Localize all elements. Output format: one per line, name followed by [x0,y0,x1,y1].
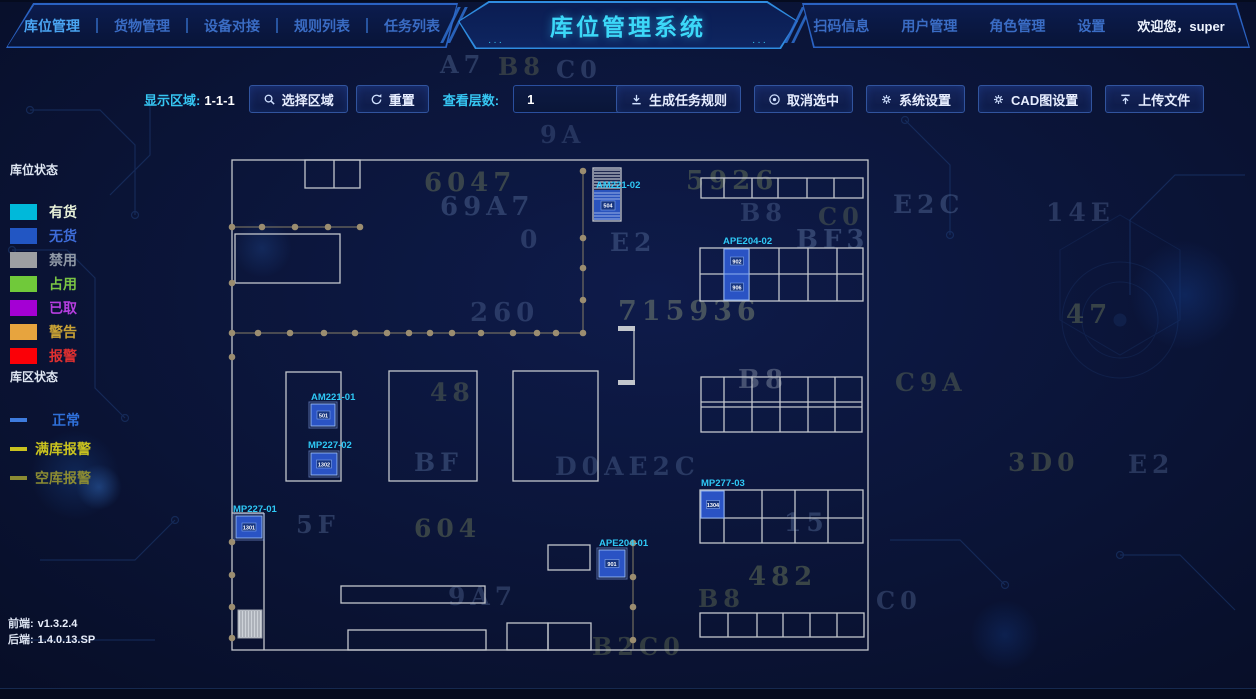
nav-item-right-0[interactable]: 扫码信息 [797,16,885,36]
zone-label: MP227-01 [233,504,278,515]
slot-cell-number: 1301 [243,525,255,531]
roller-door [238,610,262,638]
download-icon [630,93,643,106]
legend-swatch [10,324,37,340]
toolbar-button-left-1[interactable]: 重置 [356,85,429,113]
header-left-panel: 库位管理货物管理设备对接规则列表任务列表 [6,3,458,48]
slot-legend-item-0: 有货 [10,204,77,220]
zone-label: AM221-01 [311,392,356,403]
legend-label: 空库报警 [35,468,91,488]
legend-label: 禁用 [49,250,77,270]
legend-dash [10,476,27,480]
legend-label: 正常 [52,410,80,430]
warehouse-map[interactable]: 504 902 906 501 [227,157,872,651]
bottom-edge-band [0,688,1256,699]
toolbar-button-left-0[interactable]: 选择区域 [249,85,348,113]
zone-legend-item-2: 空库报警 [10,470,91,486]
legend-label: 警告 [49,322,77,342]
toolbar-button-right-4[interactable]: 上传文件 [1105,85,1204,113]
toolbar-button-right-2[interactable]: 系统设置 [866,85,965,113]
slot-legend-item-1: 无货 [10,228,77,244]
toolbar-left: 显示区域:1-1-1 选择区域重置 查看层数: 1 ∨ [144,85,656,113]
toolbar-button-left-label: 选择区域 [282,90,334,109]
toolbar-left-buttons: 选择区域重置 [249,85,429,113]
legend-dash [10,418,27,422]
legend-label: 占用 [49,274,77,294]
zone-labels: AM221-02 APE204-02 AM221-01 MP227-02 MP2… [233,180,772,549]
title-dots-decoration: ··· [752,37,768,48]
toolbar-right-buttons: 生成任务规则取消选中系统设置CAD图设置上传文件 [616,85,1204,113]
legend-swatch [10,276,37,292]
search-icon [263,93,276,106]
toolbar-button-right-label: 生成任务规则 [649,90,727,109]
display-area-label: 显示区域: [144,93,200,108]
nav-item-4[interactable]: 任务列表 [368,16,456,36]
zone-label: AM221-02 [596,180,640,191]
zone-label: MP227-02 [308,440,352,451]
slot-legend-item-5: 警告 [10,324,77,340]
page-title: 库位管理系统 [458,1,798,49]
zone-label: APE204-02 [723,236,772,247]
slot-legend-item-4: 已取 [10,300,77,316]
legend-label: 无货 [49,226,77,246]
display-area: 显示区域:1-1-1 [144,90,235,109]
toolbar-button-left-label: 重置 [389,90,415,109]
nav-item-2[interactable]: 设备对接 [188,16,276,36]
slot-legend-item-2: 禁用 [10,252,77,268]
slot-cell-number: 1302 [318,462,330,468]
slot-cell-number: 501 [319,413,328,419]
cancel-icon [768,93,781,106]
backend-version: 后端:1.4.0.13.SP [8,631,95,647]
toolbar-button-right-0[interactable]: 生成任务规则 [616,85,741,113]
nav-left-items: 库位管理货物管理设备对接规则列表任务列表 [6,3,458,48]
slot-cell-number: 902 [732,259,741,265]
toolbar-button-right-label: CAD图设置 [1011,90,1078,109]
toolbar-button-right-label: 取消选中 [787,90,839,109]
nav-item-right-3[interactable]: 设置 [1061,16,1121,36]
zone-status-title: 库区状态 [10,368,58,385]
zone-legend-item-0: 正常 [10,412,80,428]
zone-legend-item-1: 满库报警 [10,441,91,457]
display-area-value: 1-1-1 [204,93,234,108]
nav-right-items: 扫码信息用户管理角色管理设置欢迎您，super▼ [802,3,1250,48]
legend-label: 报警 [49,346,77,366]
nav-item-3[interactable]: 规则列表 [278,16,366,36]
legend-swatch [10,228,37,244]
header-right-panel: 扫码信息用户管理角色管理设置欢迎您，super▼ [802,3,1250,48]
slot-legend-item-3: 占用 [10,276,77,292]
layer-label: 查看层数: [443,90,499,109]
slot-cells: 902 906 501 1302 1301 901 1304 [234,249,749,579]
nav-item-right-1[interactable]: 用户管理 [885,16,973,36]
header-title-panel: 库位管理系统 ··· ··· [458,1,798,49]
slot-status-title: 库位状态 [10,161,58,178]
toolbar-button-right-1[interactable]: 取消选中 [754,85,853,113]
slot-cell-number: 504 [603,204,613,210]
agv-paths [229,168,637,649]
legend-swatch [10,348,37,364]
slot-legend-item-6: 报警 [10,348,77,364]
upload-icon [1119,93,1132,106]
nav-item-right-2[interactable]: 角色管理 [973,16,1061,36]
nav-item-1[interactable]: 货物管理 [98,16,186,36]
toolbar-button-right-3[interactable]: CAD图设置 [978,85,1092,113]
legend-swatch [10,300,37,316]
zone-label: APE204-01 [599,538,649,549]
legend-label: 有货 [49,202,77,222]
frontend-version: 前端:v1.3.2.4 [8,615,77,631]
welcome-user: 欢迎您，super [1121,16,1230,35]
gear-icon [992,93,1005,106]
title-dots-decoration: ··· [488,37,504,48]
slot-cell-number: 901 [607,562,616,568]
stairs: 504 [593,168,621,221]
gear-icon [880,93,893,106]
legend-label: 已取 [49,298,77,318]
zone-label: MP277-03 [701,478,745,489]
toolbar-button-right-label: 系统设置 [899,90,951,109]
legend-swatch [10,204,37,220]
slot-cell-number: 1304 [707,503,720,509]
legend-label: 满库报警 [35,439,91,459]
legend-dash [10,447,27,451]
legend-swatch [10,252,37,268]
layer-select-value: 1 [527,92,534,107]
slot-cell-number: 906 [732,285,741,291]
toolbar-button-right-label: 上传文件 [1138,90,1190,109]
refresh-icon [370,93,383,106]
